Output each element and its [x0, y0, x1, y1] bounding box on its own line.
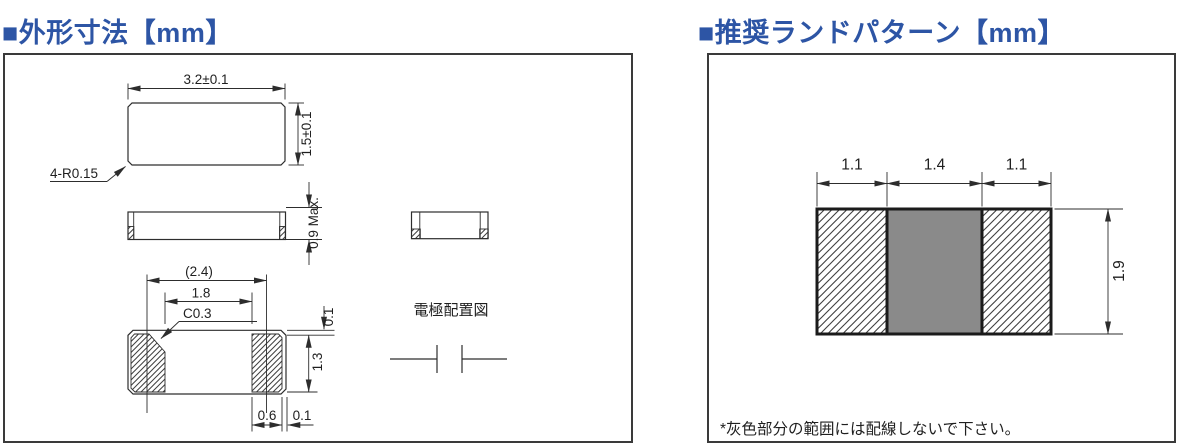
keepout-area: [887, 209, 982, 334]
land-pattern-panel: 1.1 1.4 1.1 1.9 *灰色部分の範囲には配線しないで下さい。: [707, 53, 1176, 443]
land-pad-left: [817, 209, 887, 334]
keepout-note: *灰色部分の範囲には配線しないで下さい。: [720, 420, 1020, 438]
dim-pad-width: 0.6: [258, 408, 277, 423]
outline-dimensions-title: ■外形寸法【mm】: [2, 11, 233, 50]
bottom-view: (2.4) 1.8 C0.3 0.1 1.3: [128, 264, 336, 432]
dim-right-pad-width: 1.1: [1006, 157, 1028, 174]
dim-pad-center-pitch: (2.4): [185, 264, 213, 279]
dim-center-width: 1.4: [924, 157, 946, 174]
electrode-diagram: 電極配置図: [390, 302, 507, 389]
chamfer-label: C0.3: [183, 306, 212, 321]
top-view: 3.2±0.1 1.5±0.1 4-R0.15: [50, 72, 314, 182]
end-lid: [416, 208, 485, 213]
end-view: [412, 208, 489, 239]
crystal-symbol: [390, 342, 507, 377]
side-view: 0.9 Max.: [128, 182, 322, 265]
end-terminal-left: [412, 229, 421, 239]
outline-dimensions-panel: 3.2±0.1 1.5±0.1 4-R0.15: [3, 53, 633, 443]
dim-body-thickness: 0.9 Max.: [306, 197, 321, 249]
dim-body-height: 1.5±0.1: [299, 112, 314, 157]
dim-body-width: 3.2±0.1: [184, 72, 229, 87]
land-pattern-title: ■推奨ランドパターン【mm】: [698, 11, 1065, 50]
dim-pattern-height: 1.9: [1111, 260, 1128, 282]
side-terminal-left: [128, 227, 134, 240]
side-terminal-right: [280, 227, 286, 240]
dim-left-pad-width: 1.1: [841, 157, 863, 174]
side-lid: [131, 208, 284, 213]
dim-pad-inner-gap: 1.8: [192, 286, 211, 301]
datasheet-page: ■外形寸法【mm】 ■推奨ランドパターン【mm】: [0, 0, 1178, 445]
electrode-diagram-label: 電極配置図: [413, 302, 488, 319]
end-terminal-right: [480, 229, 489, 239]
land-pad-right: [982, 209, 1051, 334]
package-body-top: [128, 103, 285, 165]
dim-pad-depth: 1.3: [310, 353, 325, 372]
end-body: [412, 212, 489, 239]
land-pattern-drawing: 1.1 1.4 1.1 1.9 *灰色部分の範囲には配線しないで下さい。: [709, 55, 1174, 441]
side-body: [128, 212, 286, 240]
bottom-pad-right: [252, 334, 282, 392]
corner-radius-label: 4-R0.15: [50, 166, 98, 181]
outline-drawing: 3.2±0.1 1.5±0.1 4-R0.15: [5, 55, 631, 441]
dim-top-margin: 0.1: [321, 308, 336, 327]
land-pattern: 1.1 1.4 1.1 1.9: [817, 157, 1128, 335]
dim-side-margin: 0.1: [293, 408, 312, 423]
